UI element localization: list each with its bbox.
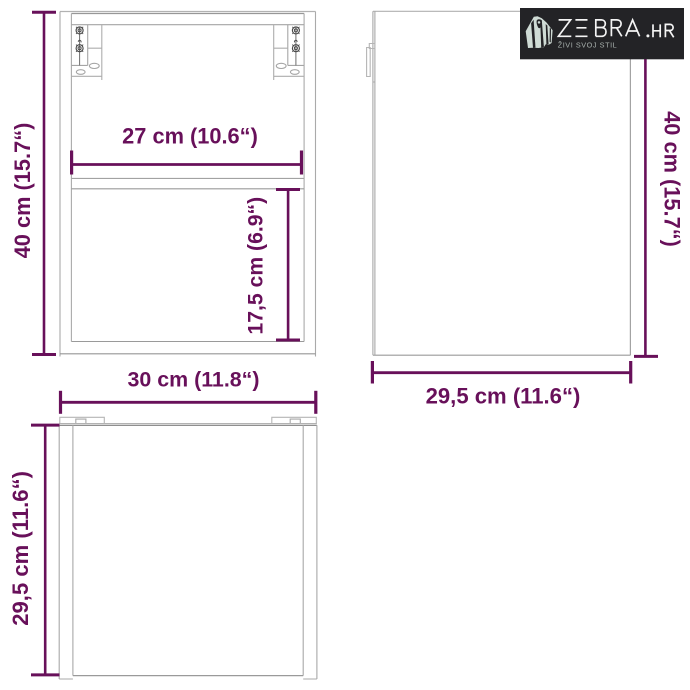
svg-text:30 cm (11.8“): 30 cm (11.8“) [128,367,260,391]
svg-text:40 cm (15.7“): 40 cm (15.7“) [660,111,685,247]
svg-text:ŽIVI SVOJ STIL: ŽIVI SVOJ STIL [558,40,618,49]
svg-text:29,5 cm (11.6“): 29,5 cm (11.6“) [426,384,581,409]
svg-text:29,5 cm (11.6“): 29,5 cm (11.6“) [8,471,33,626]
svg-text:27 cm (10.6“): 27 cm (10.6“) [122,124,258,149]
svg-text:17,5 cm (6.9“): 17,5 cm (6.9“) [245,197,268,335]
svg-text:40 cm (15.7“): 40 cm (15.7“) [10,123,35,259]
